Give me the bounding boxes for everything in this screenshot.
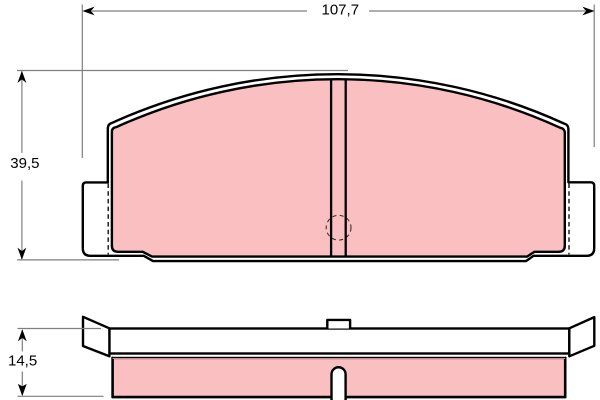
svg-text:107,7: 107,7 xyxy=(322,2,360,19)
svg-text:39,5: 39,5 xyxy=(10,155,39,172)
svg-text:14,5: 14,5 xyxy=(8,353,37,370)
